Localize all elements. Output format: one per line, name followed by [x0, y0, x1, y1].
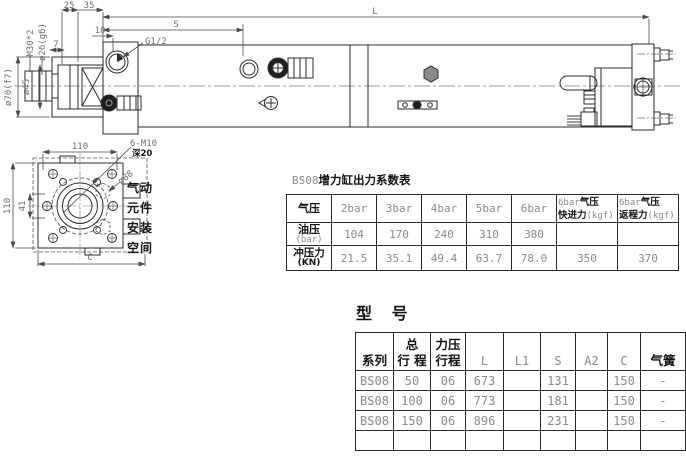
oil-pressure-row: 油压 (bar) 104 170 240 310 380	[287, 223, 679, 246]
hex-plug	[424, 66, 438, 82]
model-row: BS08 100 06 773 181 150 -	[356, 391, 686, 411]
piston-rod-assembly	[25, 57, 103, 117]
table-cell: 131	[541, 371, 576, 391]
end-view-drawing: 110 110 41 C 6-M10 深20 ø88 气动 元件 安装 空间	[0, 130, 170, 274]
drawing-sheet: 25 35 10 S L G1/2 M30*2 ø26(g6) 7 ø45 ø7…	[0, 0, 686, 474]
g12-port	[106, 51, 128, 73]
end-cap	[632, 44, 654, 130]
header-cell: L1	[504, 333, 541, 371]
dim-35: 35	[84, 1, 95, 11]
model-header-row: 系列 总行 程 力压行程 L L1 S A2 C 气簧	[356, 333, 686, 371]
table-cell: 370	[618, 246, 679, 271]
coeff-header-row: 气压 2bar 3bar 4bar 5bar 6bar 6bar气压 快进力(k…	[287, 195, 679, 223]
dim-25: 25	[64, 1, 75, 11]
header-cell: A2	[576, 333, 608, 371]
table-cell	[608, 431, 641, 451]
table-cell	[431, 431, 466, 451]
cable-leads	[567, 116, 581, 125]
table-cell: 181	[541, 391, 576, 411]
dim-c: C	[87, 253, 92, 263]
table-cell	[576, 431, 608, 451]
space-note-2: 元件	[127, 200, 153, 215]
coeff-title-prefix: BS08	[292, 174, 319, 187]
dim-110-left: 110	[3, 198, 13, 214]
table-cell: 150	[608, 411, 641, 431]
table-cell: -	[641, 391, 686, 411]
header-cell: S	[541, 333, 576, 371]
sensor-bracket	[398, 101, 437, 109]
table-cell	[576, 371, 608, 391]
table-cell: BS08	[356, 391, 394, 411]
table-cell: 50	[394, 371, 431, 391]
table-cell: 310	[467, 223, 512, 246]
table-cell	[541, 431, 576, 451]
table-cell	[576, 411, 608, 431]
model-table: 系列 总行 程 力压行程 L L1 S A2 C 气簧 BS08 50 06 6…	[355, 332, 686, 451]
dim-110-top: 110	[72, 142, 88, 152]
space-note-4: 空间	[127, 240, 153, 255]
elbow-fitting	[268, 58, 313, 78]
header-cell: 3bar	[377, 195, 422, 223]
table-cell: 35.1	[377, 246, 422, 271]
table-cell	[504, 431, 541, 451]
table-cell	[576, 391, 608, 411]
table-cell: 350	[557, 246, 618, 271]
table-cell: 06	[431, 371, 466, 391]
header-cell: 力压行程	[431, 333, 466, 371]
thread-label: M30*2	[26, 29, 36, 56]
header-cell: 气簧	[641, 333, 686, 371]
flange-plate	[38, 156, 140, 255]
coeff-table-title: BS08增力缸出力系数表	[292, 172, 411, 188]
depth-callout: 深20	[132, 148, 152, 159]
table-cell: 150	[608, 391, 641, 411]
dim-41: 41	[18, 201, 28, 212]
dim-10: 10	[95, 26, 106, 36]
table-cell	[641, 431, 686, 451]
bolt-callout: 6-M10	[130, 139, 157, 149]
dim-s: S	[173, 20, 178, 30]
dia-45: ø45	[22, 79, 32, 95]
header-cell: 总行 程	[394, 333, 431, 371]
table-cell: 150	[394, 411, 431, 431]
header-cell: C	[608, 333, 641, 371]
dim-l: L	[372, 7, 377, 17]
drain-plug	[101, 95, 141, 111]
header-cell: 气压	[287, 195, 332, 223]
coeff-table: 气压 2bar 3bar 4bar 5bar 6bar 6bar气压 快进力(k…	[286, 194, 679, 271]
model-row	[356, 431, 686, 451]
table-cell: -	[641, 371, 686, 391]
header-cell: 6bar	[512, 195, 557, 223]
port-label: G1/2	[145, 37, 167, 47]
table-cell: -	[641, 411, 686, 431]
table-cell: 78.0	[512, 246, 557, 271]
table-cell: 06	[431, 391, 466, 411]
row-label-cell: 油压 (bar)	[287, 223, 332, 246]
table-cell	[557, 223, 618, 246]
table-cell: BS08	[356, 411, 394, 431]
table-cell: 380	[512, 223, 557, 246]
table-cell: 06	[431, 411, 466, 431]
table-cell: 170	[377, 223, 422, 246]
table-cell: 673	[466, 371, 504, 391]
table-cell: 100	[394, 391, 431, 411]
table-cell	[394, 431, 431, 451]
space-note-1: 气动	[126, 180, 153, 195]
rod-dia-label: ø26(g6)	[38, 23, 48, 61]
coeff-title-text: 增力缸出力系数表	[319, 173, 411, 187]
space-note-3: 安装	[127, 220, 153, 235]
table-cell: 773	[466, 391, 504, 411]
table-cell: 49.4	[422, 246, 467, 271]
header-cell: 6bar气压 返程力(kgf)	[618, 195, 679, 223]
header-cell: 2bar	[332, 195, 377, 223]
row-label-cell: 冲压力 (KN)	[287, 246, 332, 271]
header-cell: 系列	[356, 333, 394, 371]
table-cell: 231	[541, 411, 576, 431]
table-cell: 104	[332, 223, 377, 246]
header-cell: 4bar	[422, 195, 467, 223]
table-cell: 63.7	[467, 246, 512, 271]
table-cell: 150	[608, 371, 641, 391]
model-row: BS08 150 06 896 231 150 -	[356, 411, 686, 431]
dia-70: ø70(f7)	[4, 68, 14, 106]
punch-force-row: 冲压力 (KN) 21.5 35.1 49.4 63.7 78.0 350 37…	[287, 246, 679, 271]
table-cell: 21.5	[332, 246, 377, 271]
table-cell	[504, 411, 541, 431]
table-cell: 896	[466, 411, 504, 431]
dim-7: 7	[53, 40, 58, 50]
table-cell: BS08	[356, 371, 394, 391]
table-cell	[504, 391, 541, 411]
mid-port	[240, 60, 258, 78]
valve-assembly	[560, 68, 632, 126]
model-row: BS08 50 06 673 131 150 -	[356, 371, 686, 391]
table-cell	[504, 371, 541, 391]
table-cell	[466, 431, 504, 451]
header-cell: 5bar	[467, 195, 512, 223]
header-cell: 6bar气压 快进力(kgf)	[557, 195, 618, 223]
table-cell: 240	[422, 223, 467, 246]
table-cell	[356, 431, 394, 451]
table-cell	[618, 223, 679, 246]
model-table-title: 型 号	[356, 300, 415, 324]
nozzle-fitting	[259, 97, 278, 110]
header-cell: L	[466, 333, 504, 371]
